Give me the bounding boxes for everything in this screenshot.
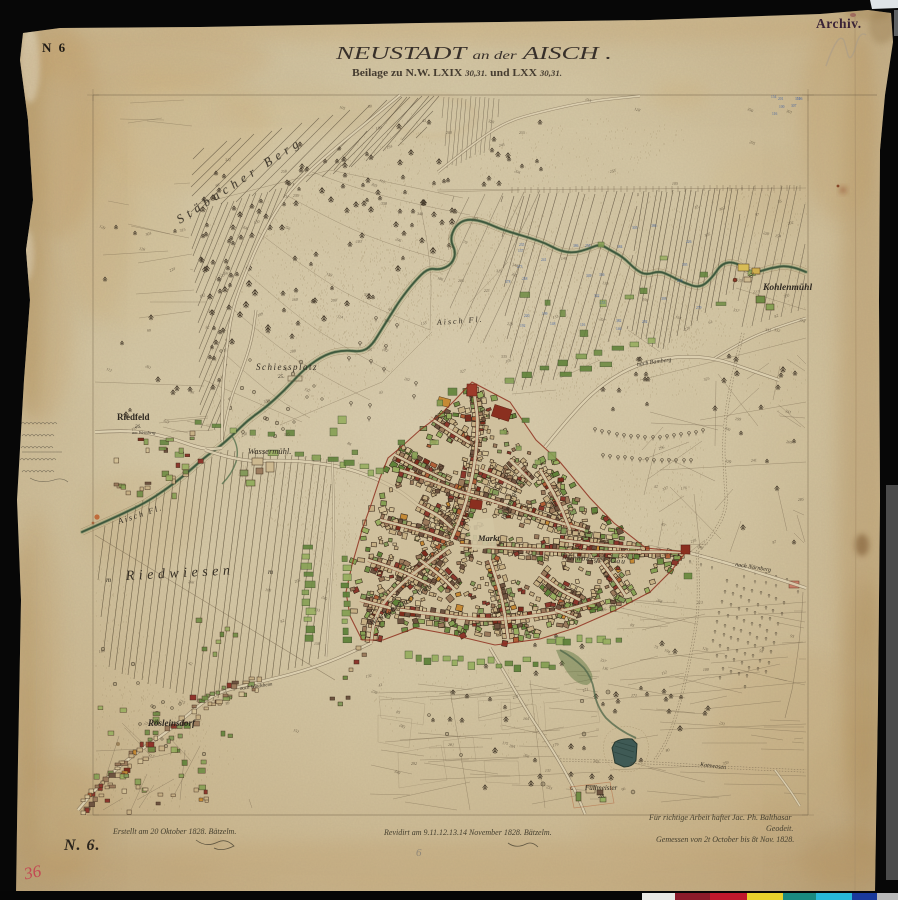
- svg-text:312: 312: [225, 157, 231, 162]
- svg-text:Geodeit.: Geodeit.: [766, 824, 793, 833]
- svg-text:58: 58: [759, 648, 764, 654]
- svg-text:50: 50: [367, 103, 372, 109]
- svg-text:382: 382: [616, 319, 622, 323]
- svg-text:N. 6.: N. 6.: [63, 837, 101, 854]
- svg-text:Riedfeld: Riedfeld: [117, 412, 150, 422]
- svg-text:274: 274: [609, 603, 616, 609]
- svg-text:255: 255: [293, 193, 299, 198]
- svg-text:213: 213: [697, 599, 703, 605]
- svg-text:Für richtige Arbeit haftet Jac: Für richtige Arbeit haftet Jac. Ph. Balt…: [648, 813, 792, 822]
- svg-text:m: m: [268, 568, 273, 576]
- svg-text:106: 106: [797, 97, 803, 101]
- svg-text:307: 307: [791, 104, 797, 108]
- svg-text:290: 290: [331, 297, 338, 303]
- svg-text:378: 378: [505, 280, 511, 284]
- svg-text:288: 288: [289, 348, 296, 354]
- svg-text:154: 154: [771, 95, 777, 99]
- svg-text:164: 164: [523, 716, 529, 721]
- svg-text:Wassermühl.: Wassermühl.: [248, 446, 291, 456]
- svg-text:281: 281: [448, 742, 454, 747]
- svg-text:348: 348: [417, 211, 423, 216]
- svg-text:100: 100: [779, 105, 785, 109]
- svg-text:192: 192: [520, 324, 526, 328]
- svg-text:180: 180: [265, 587, 271, 593]
- svg-text:358: 358: [364, 292, 370, 297]
- svg-text:305: 305: [632, 226, 638, 230]
- svg-text:m: m: [106, 576, 111, 584]
- svg-text:99: 99: [146, 327, 151, 333]
- svg-text:Gemessen von 2t October bis 8t: Gemessen von 2t October bis 8t Nov. 1828…: [656, 835, 794, 844]
- svg-text:183: 183: [356, 238, 362, 244]
- svg-text:168: 168: [292, 297, 298, 302]
- svg-text:126: 126: [139, 246, 145, 252]
- svg-text:333: 333: [314, 607, 320, 613]
- svg-text:171: 171: [631, 693, 637, 698]
- svg-text:am Weinberg: am Weinberg: [132, 430, 156, 435]
- svg-text:200: 200: [446, 130, 452, 135]
- svg-text:258: 258: [585, 244, 591, 248]
- svg-text:315: 315: [496, 268, 502, 274]
- svg-text:292: 292: [411, 761, 417, 766]
- svg-text:199: 199: [542, 312, 548, 316]
- svg-text:Kohlenmühl: Kohlenmühl: [762, 283, 812, 293]
- svg-text:154: 154: [775, 233, 781, 238]
- svg-text:258: 258: [281, 168, 288, 174]
- svg-text:124: 124: [337, 314, 343, 320]
- svg-text:241: 241: [750, 457, 757, 463]
- svg-text:269: 269: [786, 439, 793, 445]
- svg-text:116: 116: [580, 323, 585, 327]
- svg-text:139: 139: [602, 280, 609, 286]
- svg-text:201: 201: [778, 97, 784, 101]
- svg-text:28.: 28.: [598, 794, 606, 800]
- svg-text:175: 175: [502, 740, 509, 746]
- svg-text:241: 241: [541, 258, 547, 262]
- svg-text:221: 221: [484, 287, 490, 293]
- svg-text:131: 131: [545, 768, 551, 773]
- svg-text:185: 185: [472, 215, 478, 221]
- svg-text:349: 349: [586, 274, 592, 278]
- svg-text:358: 358: [381, 201, 387, 206]
- svg-text:299: 299: [735, 416, 741, 422]
- svg-text:N 6: N 6: [42, 40, 67, 55]
- svg-text:Beilage zu N.W. LXIX 30,31. un: Beilage zu N.W. LXIX 30,31. und LXX 30,3…: [352, 68, 562, 79]
- svg-text:285: 285: [798, 496, 804, 502]
- svg-text:336: 336: [599, 273, 605, 277]
- svg-text:291: 291: [466, 415, 472, 421]
- svg-text:Markt: Markt: [477, 533, 500, 543]
- svg-text:386: 386: [573, 244, 579, 248]
- svg-text:229: 229: [507, 321, 513, 326]
- svg-text:305: 305: [283, 431, 290, 437]
- svg-text:140: 140: [561, 255, 567, 261]
- svg-text:226: 226: [686, 240, 692, 244]
- svg-text:258: 258: [522, 277, 528, 281]
- svg-text:218: 218: [677, 279, 683, 283]
- svg-text:Rösleinsdorf: Rösleinsdorf: [147, 718, 196, 728]
- svg-text:6: 6: [416, 847, 422, 859]
- svg-text:384: 384: [617, 245, 623, 249]
- svg-text:43: 43: [422, 118, 426, 123]
- svg-text:284: 284: [509, 743, 516, 749]
- svg-text:42: 42: [653, 483, 658, 489]
- svg-text:153: 153: [600, 301, 606, 305]
- svg-text:148: 148: [550, 322, 556, 326]
- svg-text:25.: 25.: [278, 375, 284, 380]
- svg-text:Schiessplatz: Schiessplatz: [256, 362, 318, 372]
- svg-text:331: 331: [765, 327, 771, 333]
- svg-text:273: 273: [517, 265, 523, 269]
- svg-text:158: 158: [314, 641, 320, 646]
- svg-text:260: 260: [662, 551, 668, 557]
- svg-text:393: 393: [661, 297, 667, 301]
- svg-text:116: 116: [772, 112, 777, 116]
- svg-text:105: 105: [672, 181, 678, 186]
- svg-text:279: 279: [696, 306, 702, 310]
- svg-text:292: 292: [642, 320, 648, 324]
- svg-text:137: 137: [518, 249, 524, 253]
- svg-text:395: 395: [682, 263, 688, 267]
- svg-text:285: 285: [458, 278, 464, 283]
- svg-text:386: 386: [651, 224, 657, 228]
- svg-text:342: 342: [594, 294, 600, 298]
- svg-text:255: 255: [519, 130, 525, 135]
- svg-text:66: 66: [224, 270, 229, 276]
- svg-text:220: 220: [524, 314, 530, 318]
- svg-text:329: 329: [736, 277, 743, 283]
- svg-text:Erstellt am 20 Oktober 1828. B: Erstellt am 20 Oktober 1828. Bätzelm.: [112, 827, 236, 836]
- svg-text:Archiv.: Archiv.: [816, 16, 862, 31]
- svg-text:188: 188: [703, 667, 709, 672]
- svg-text:Revidirt am 9.11.12.13.14 Nove: Revidirt am 9.11.12.13.14 November 1828.…: [383, 828, 552, 837]
- svg-text:146: 146: [616, 327, 622, 331]
- svg-text:332: 332: [774, 327, 781, 333]
- svg-text:235: 235: [519, 243, 525, 247]
- svg-text:Füllmeister: Füllmeister: [584, 784, 618, 792]
